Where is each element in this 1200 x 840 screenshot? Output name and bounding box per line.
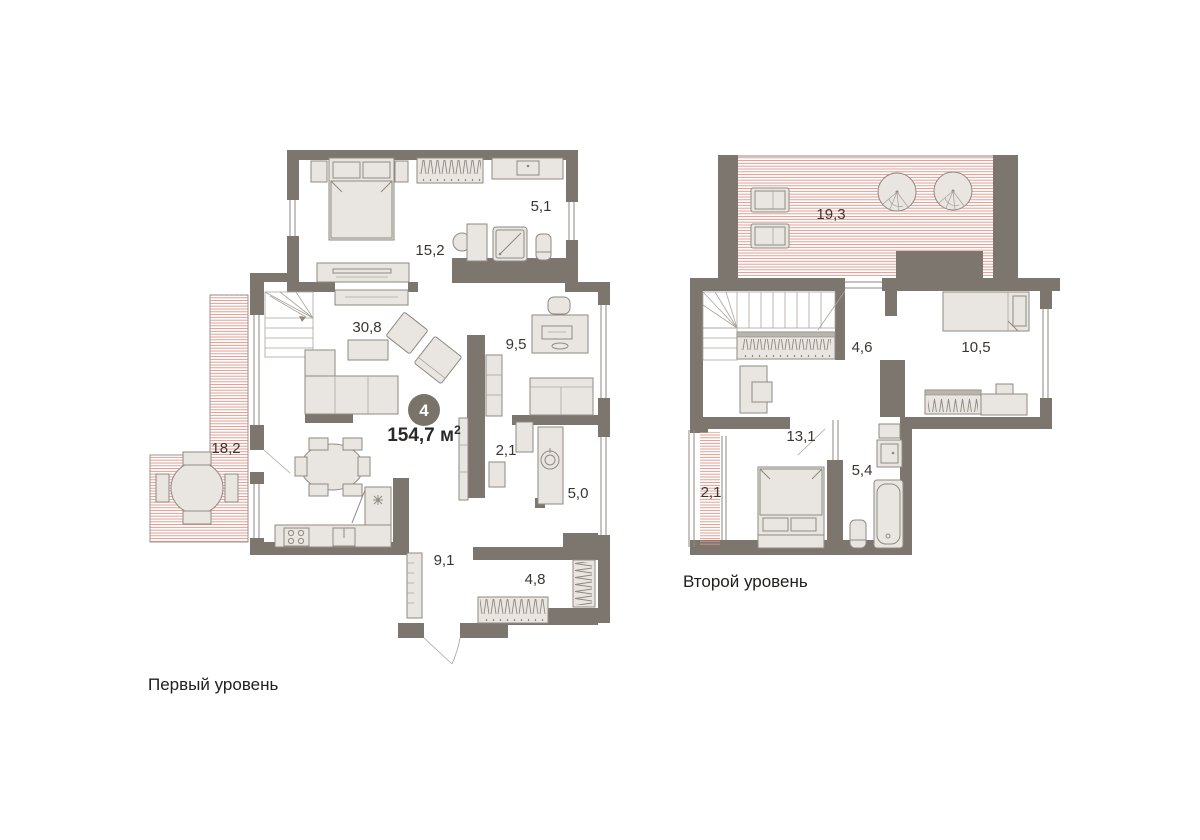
level-2-plan: 19,3 4,6 10,5 13,1 5,4 2,1 Второй уровен… [683,155,1060,591]
room-area-label: 4,8 [525,571,546,588]
room-area-label: 9,5 [506,336,527,353]
room-area-label: 18,2 [211,440,240,457]
level-1-plan: 4 154,7 м2 15,2 5,1 30,8 9,5 2,1 5,0 18,… [148,150,610,694]
room-area-label: 19,3 [816,206,845,223]
room-area-label: 10,5 [961,339,990,356]
room-area-label: 13,1 [786,428,815,445]
badge-room-count: 4 [419,401,429,420]
room-area-label: 15,2 [415,242,444,259]
room-area-label: 5,4 [852,462,873,479]
room-area-label: 5,0 [568,485,589,502]
room-area-label: 2,1 [701,484,722,501]
office-furniture [530,297,593,415]
floor-plan-page: 4 154,7 м2 15,2 5,1 30,8 9,5 2,1 5,0 18,… [0,0,1200,840]
level-2-caption: Второй уровень [683,572,808,591]
kitchen-furniture [275,487,391,547]
kids-room-furniture [758,467,824,548]
bathroom-2-fixtures [850,424,903,548]
floor-plan-canvas: 4 154,7 м2 15,2 5,1 30,8 9,5 2,1 5,0 18,… [0,0,1200,840]
room-area-label: 2,1 [496,442,517,459]
stairs-level-1 [265,292,313,357]
terrace-2 [718,155,1018,287]
round-chair [878,173,916,211]
room-area-label: 30,8 [352,319,381,336]
hall-2-furniture [737,332,835,413]
level-1-caption: Первый уровень [148,675,278,694]
total-area: 154,7 м2 [387,423,461,446]
terrace-1 [150,295,248,542]
room-area-label: 5,1 [531,198,552,215]
round-chair [934,172,972,210]
room-area-label: 9,1 [434,552,455,569]
room-area-label: 4,6 [852,339,873,356]
